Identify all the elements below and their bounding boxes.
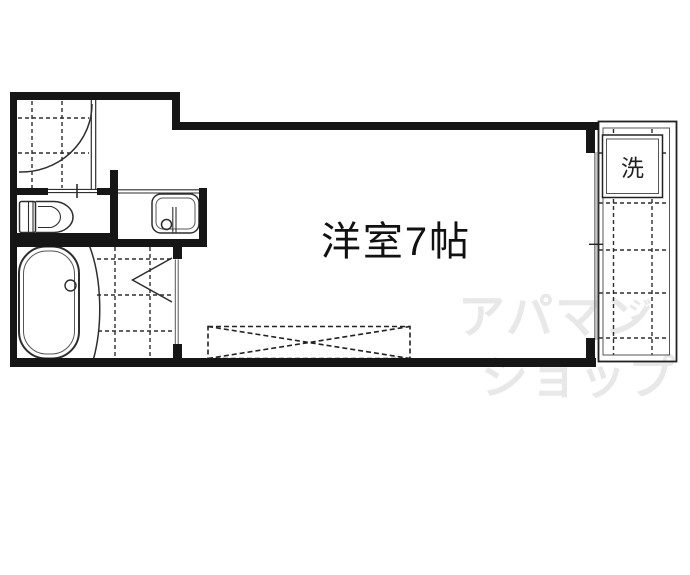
sink-faucet-icon: [162, 220, 172, 230]
bath-curved-partition: [90, 246, 100, 359]
wall-right-stub-top: [586, 122, 595, 153]
watermark: アパマン ジ ショップ: [458, 290, 677, 404]
floorplan-image: アパマン ジ ショップ: [0, 0, 690, 575]
wall-toilet-top-left: [10, 188, 48, 195]
loft-storage-cross: [208, 327, 410, 359]
wall-mid-right: [118, 239, 207, 247]
entrance-area: [18, 100, 96, 189]
wall-bath-door-jamb-top: [173, 247, 182, 259]
wall-mid-left: [10, 233, 118, 247]
watermark-mark: ジ: [628, 297, 652, 324]
wall-top-main: [172, 122, 599, 130]
wall-top-entrance: [10, 92, 180, 100]
washing-machine-label: 洗: [621, 155, 644, 181]
bath-folding-door: [133, 258, 173, 302]
sink-counter: [118, 190, 199, 233]
main-room: 洋室7帖: [208, 220, 471, 359]
room-label: 洋室7帖: [321, 220, 471, 264]
bathroom: [19, 246, 178, 359]
bathtub-inner: [24, 251, 75, 354]
toilet-bowl-rim: [38, 207, 60, 228]
floorplan-drawing: アパマン ジ ショップ: [0, 0, 690, 575]
loft-storage-outline: [208, 327, 410, 359]
entrance-door-swing-arc: [19, 104, 92, 172]
wall-bottom: [10, 358, 596, 367]
wall-kitchenette-right: [199, 188, 207, 247]
watermark-line1: アパマン: [458, 290, 653, 343]
loft-storage-cross: [208, 327, 410, 359]
bathtub-outer: [19, 247, 79, 359]
wall-right-stub-bottom: [586, 338, 595, 367]
wall-left: [10, 92, 17, 367]
